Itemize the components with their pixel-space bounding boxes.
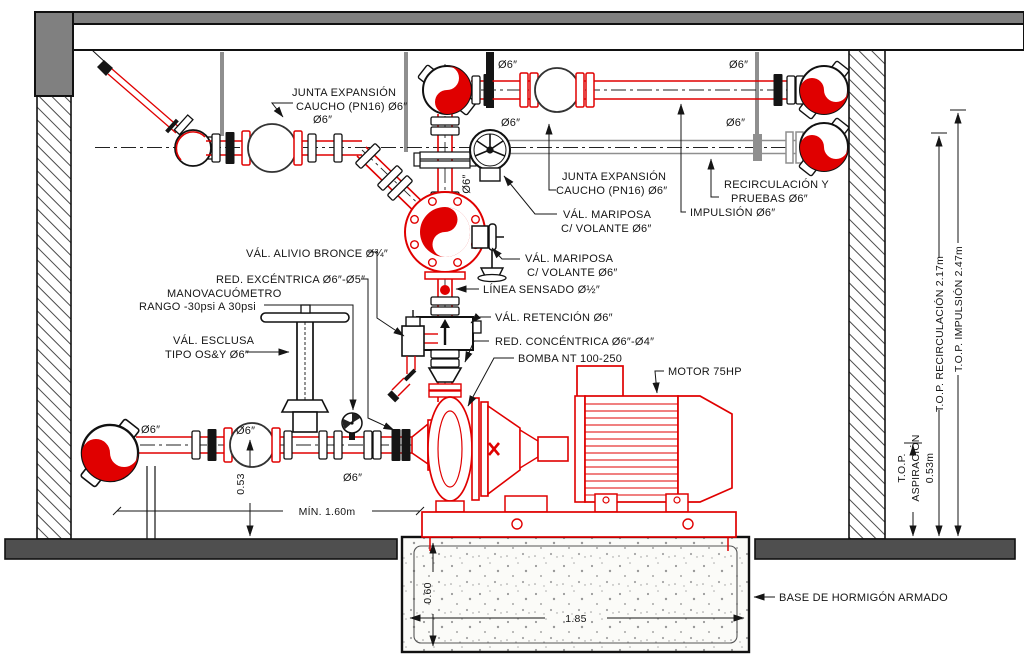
label-diameter: Ø6″ xyxy=(313,114,332,126)
grooved-coupling xyxy=(414,152,476,168)
label-junta-expansion-top-1: JUNTA EXPANSIÓN xyxy=(292,86,396,99)
dim-base-height: 0.60 xyxy=(422,582,434,603)
pump xyxy=(428,397,568,512)
dim-min-clearance: MÍN. 1.60m xyxy=(299,505,356,518)
label-manovacuometro-2: RANGO -30psi A 30psi xyxy=(139,301,256,313)
grooved-elbow-impulsion xyxy=(799,61,850,120)
dim-top-impulsion: T.O.P. IMPULSIÓN 2.47m xyxy=(952,246,965,372)
dim-suction-height: 0.53 xyxy=(235,473,247,494)
pump-room-drawing: 0.53 MÍN. 1.60m T.O.P. RECIRCULACIÓN 2.1… xyxy=(0,0,1024,657)
label-base-hormigon: BASE DE HORMIGÓN ARMADO xyxy=(779,591,948,604)
diagonal-inlet-pipe xyxy=(92,50,180,133)
concentric-reducer xyxy=(429,368,461,382)
ceiling-beam xyxy=(73,24,1024,50)
label-red-concentrica: RED. CONCÉNTRICA Ø6″-Ø4″ xyxy=(495,335,654,348)
label-manovacuometro-1: MANOVACUÓMETRO xyxy=(167,287,282,300)
nozzle-fitting xyxy=(97,60,113,76)
label-diameter: Ø6″ xyxy=(729,59,748,71)
label-val-esclusa-1: VÁL. ESCLUSA xyxy=(173,334,255,347)
label-recirculacion-2: PRUEBAS Ø6″ xyxy=(731,193,808,205)
label-diameter: Ø6″ xyxy=(343,472,362,484)
drawing-canvas: 0.53 MÍN. 1.60m T.O.P. RECIRCULACIÓN 2.1… xyxy=(0,0,1024,657)
dim-base-width: 1.85 xyxy=(565,613,586,625)
recirc-coupling xyxy=(753,134,762,161)
grooved-elbow-suction xyxy=(80,419,139,488)
dim-top-recirculacion: T.O.P. RECIRCULACIÓN 2.17m xyxy=(933,256,946,412)
label-diameter: Ø6″ xyxy=(236,425,255,437)
label-junta-expansion-top-2: CAUCHO (PN16) Ø6″ xyxy=(296,101,407,113)
label-diameter-riser: Ø6″ xyxy=(461,174,473,193)
label-val-mariposa-1a: VÁL. MARIPOSA xyxy=(563,208,652,221)
floor-right xyxy=(755,539,1015,559)
label-diameter: Ø6″ xyxy=(141,424,160,436)
label-val-retencion: VÁL. RETENCIÓN Ø6″ xyxy=(495,311,613,324)
label-val-alivio: VÁL. ALIVIO BRONCE Ø¾″ xyxy=(246,247,388,260)
label-recirculacion-1: RECIRCULACIÓN Y xyxy=(724,178,829,191)
label-impulsion: IMPULSIÓN Ø6″ xyxy=(690,206,775,219)
pressure-gauge xyxy=(342,413,362,440)
right-wall xyxy=(849,50,885,539)
grooved-tee-coupling xyxy=(418,65,477,116)
expansion-joint-impulsion xyxy=(520,68,594,112)
label-val-esclusa-2: TIPO OS&Y Ø6″ xyxy=(165,349,249,361)
label-motor: MOTOR 75HP xyxy=(668,366,742,378)
dim-top-aspiracion-3: 0.53m xyxy=(924,453,936,483)
dim-top-aspiracion-1: T.O.P. xyxy=(896,453,908,482)
left-wall xyxy=(37,96,71,539)
floor-left xyxy=(5,539,397,559)
label-diameter: Ø6″ xyxy=(501,117,520,129)
label-bomba: BOMBA NT 100-250 xyxy=(518,353,622,365)
label-val-mariposa-2a: VÁL. MARIPOSA xyxy=(525,252,614,265)
label-junta-expansion-mid-1: JUNTA EXPANSIÓN xyxy=(562,170,666,183)
butterfly-valve-handwheel xyxy=(470,130,510,181)
label-diameter: Ø6″ xyxy=(726,117,745,129)
label-val-mariposa-1b: C/ VOLANTE Ø6″ xyxy=(561,223,652,235)
label-linea-sensado: LÍNEA SENSADO Ø½″ xyxy=(483,283,600,296)
label-diameter: Ø6″ xyxy=(498,59,517,71)
grooved-elbow-recirc xyxy=(799,118,850,177)
eccentric-reducer xyxy=(412,424,428,464)
left-wall-corner xyxy=(35,12,73,96)
motor xyxy=(575,366,732,512)
dim-top-aspiracion-2: ASPIRACIÓN xyxy=(909,434,922,501)
concrete-base xyxy=(402,537,749,652)
label-val-mariposa-2b: C/ VOLANTE Ø6″ xyxy=(527,267,618,279)
expansion-joint-left xyxy=(242,124,302,172)
sensing-line-tap xyxy=(440,285,450,295)
label-red-excentrica: RED. EXCÉNTRICA Ø6″-Ø5″ xyxy=(216,273,365,286)
label-junta-expansion-mid-2: CAUCHO (PN16) Ø6″ xyxy=(556,185,667,197)
